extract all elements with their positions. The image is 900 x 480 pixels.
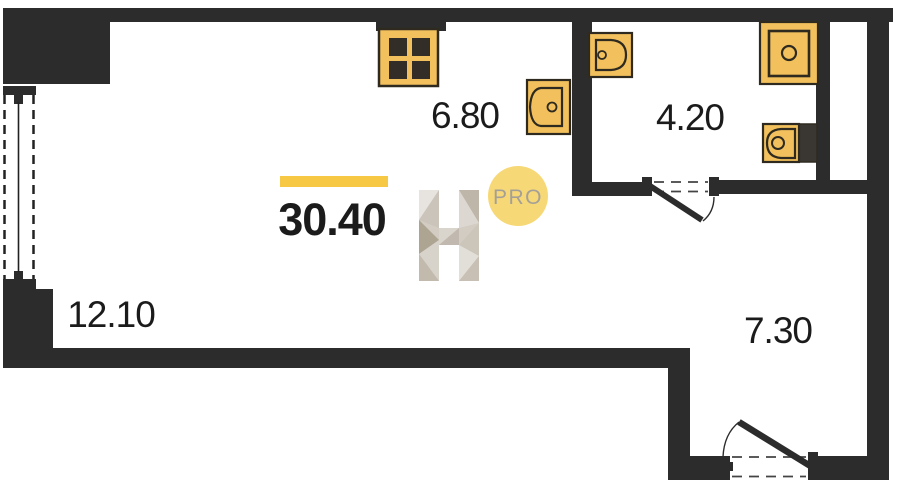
- kitchen-sink-icon: [527, 80, 570, 134]
- bathroom-sink-icon: [589, 33, 632, 77]
- window-top-cap: [3, 86, 36, 95]
- total-area-block: 30.40: [278, 176, 388, 245]
- stove-burner: [389, 38, 407, 56]
- window-glass-cap-bottom: [14, 271, 23, 280]
- stove-burner: [412, 38, 430, 56]
- bathroom-door-jamb-right: [709, 177, 719, 196]
- entry-door-jamb-left-notch: [725, 462, 733, 471]
- stove-burner: [389, 61, 407, 79]
- wall-entry-right: [818, 456, 867, 480]
- wall-hallway-left: [668, 348, 690, 480]
- area-label-hallway: 7.30: [744, 310, 812, 351]
- stove-icon: [379, 29, 438, 86]
- stove-burner: [412, 61, 430, 79]
- floorplan-svg: 12.10 6.80 4.20 7.30 30.40 PRO: [0, 0, 900, 480]
- area-label-bathroom: 4.20: [656, 97, 724, 138]
- pro-badge-label: PRO: [493, 186, 543, 209]
- toilet-icon: [763, 124, 817, 162]
- pro-badge: PRO: [488, 166, 548, 226]
- window-bottom-cap: [3, 279, 36, 289]
- wall-bathroom-bottom-left: [572, 182, 642, 196]
- area-label-living-room: 12.10: [67, 294, 155, 335]
- wall-right: [867, 8, 889, 480]
- total-area-value: 30.40: [278, 194, 386, 245]
- wall-bathroom-bottom-right: [719, 180, 867, 194]
- area-label-kitchen: 6.80: [431, 95, 499, 136]
- accent-bar: [280, 176, 388, 187]
- toilet-cistern: [799, 124, 817, 162]
- wall-top: [110, 8, 893, 22]
- wall-top-left-block: [3, 8, 110, 84]
- shower-icon: [760, 22, 818, 84]
- wall-entry-left: [690, 456, 720, 480]
- wall-main-bottom: [3, 348, 690, 368]
- floorplan-canvas: 12.10 6.80 4.20 7.30 30.40 PRO: [0, 0, 900, 480]
